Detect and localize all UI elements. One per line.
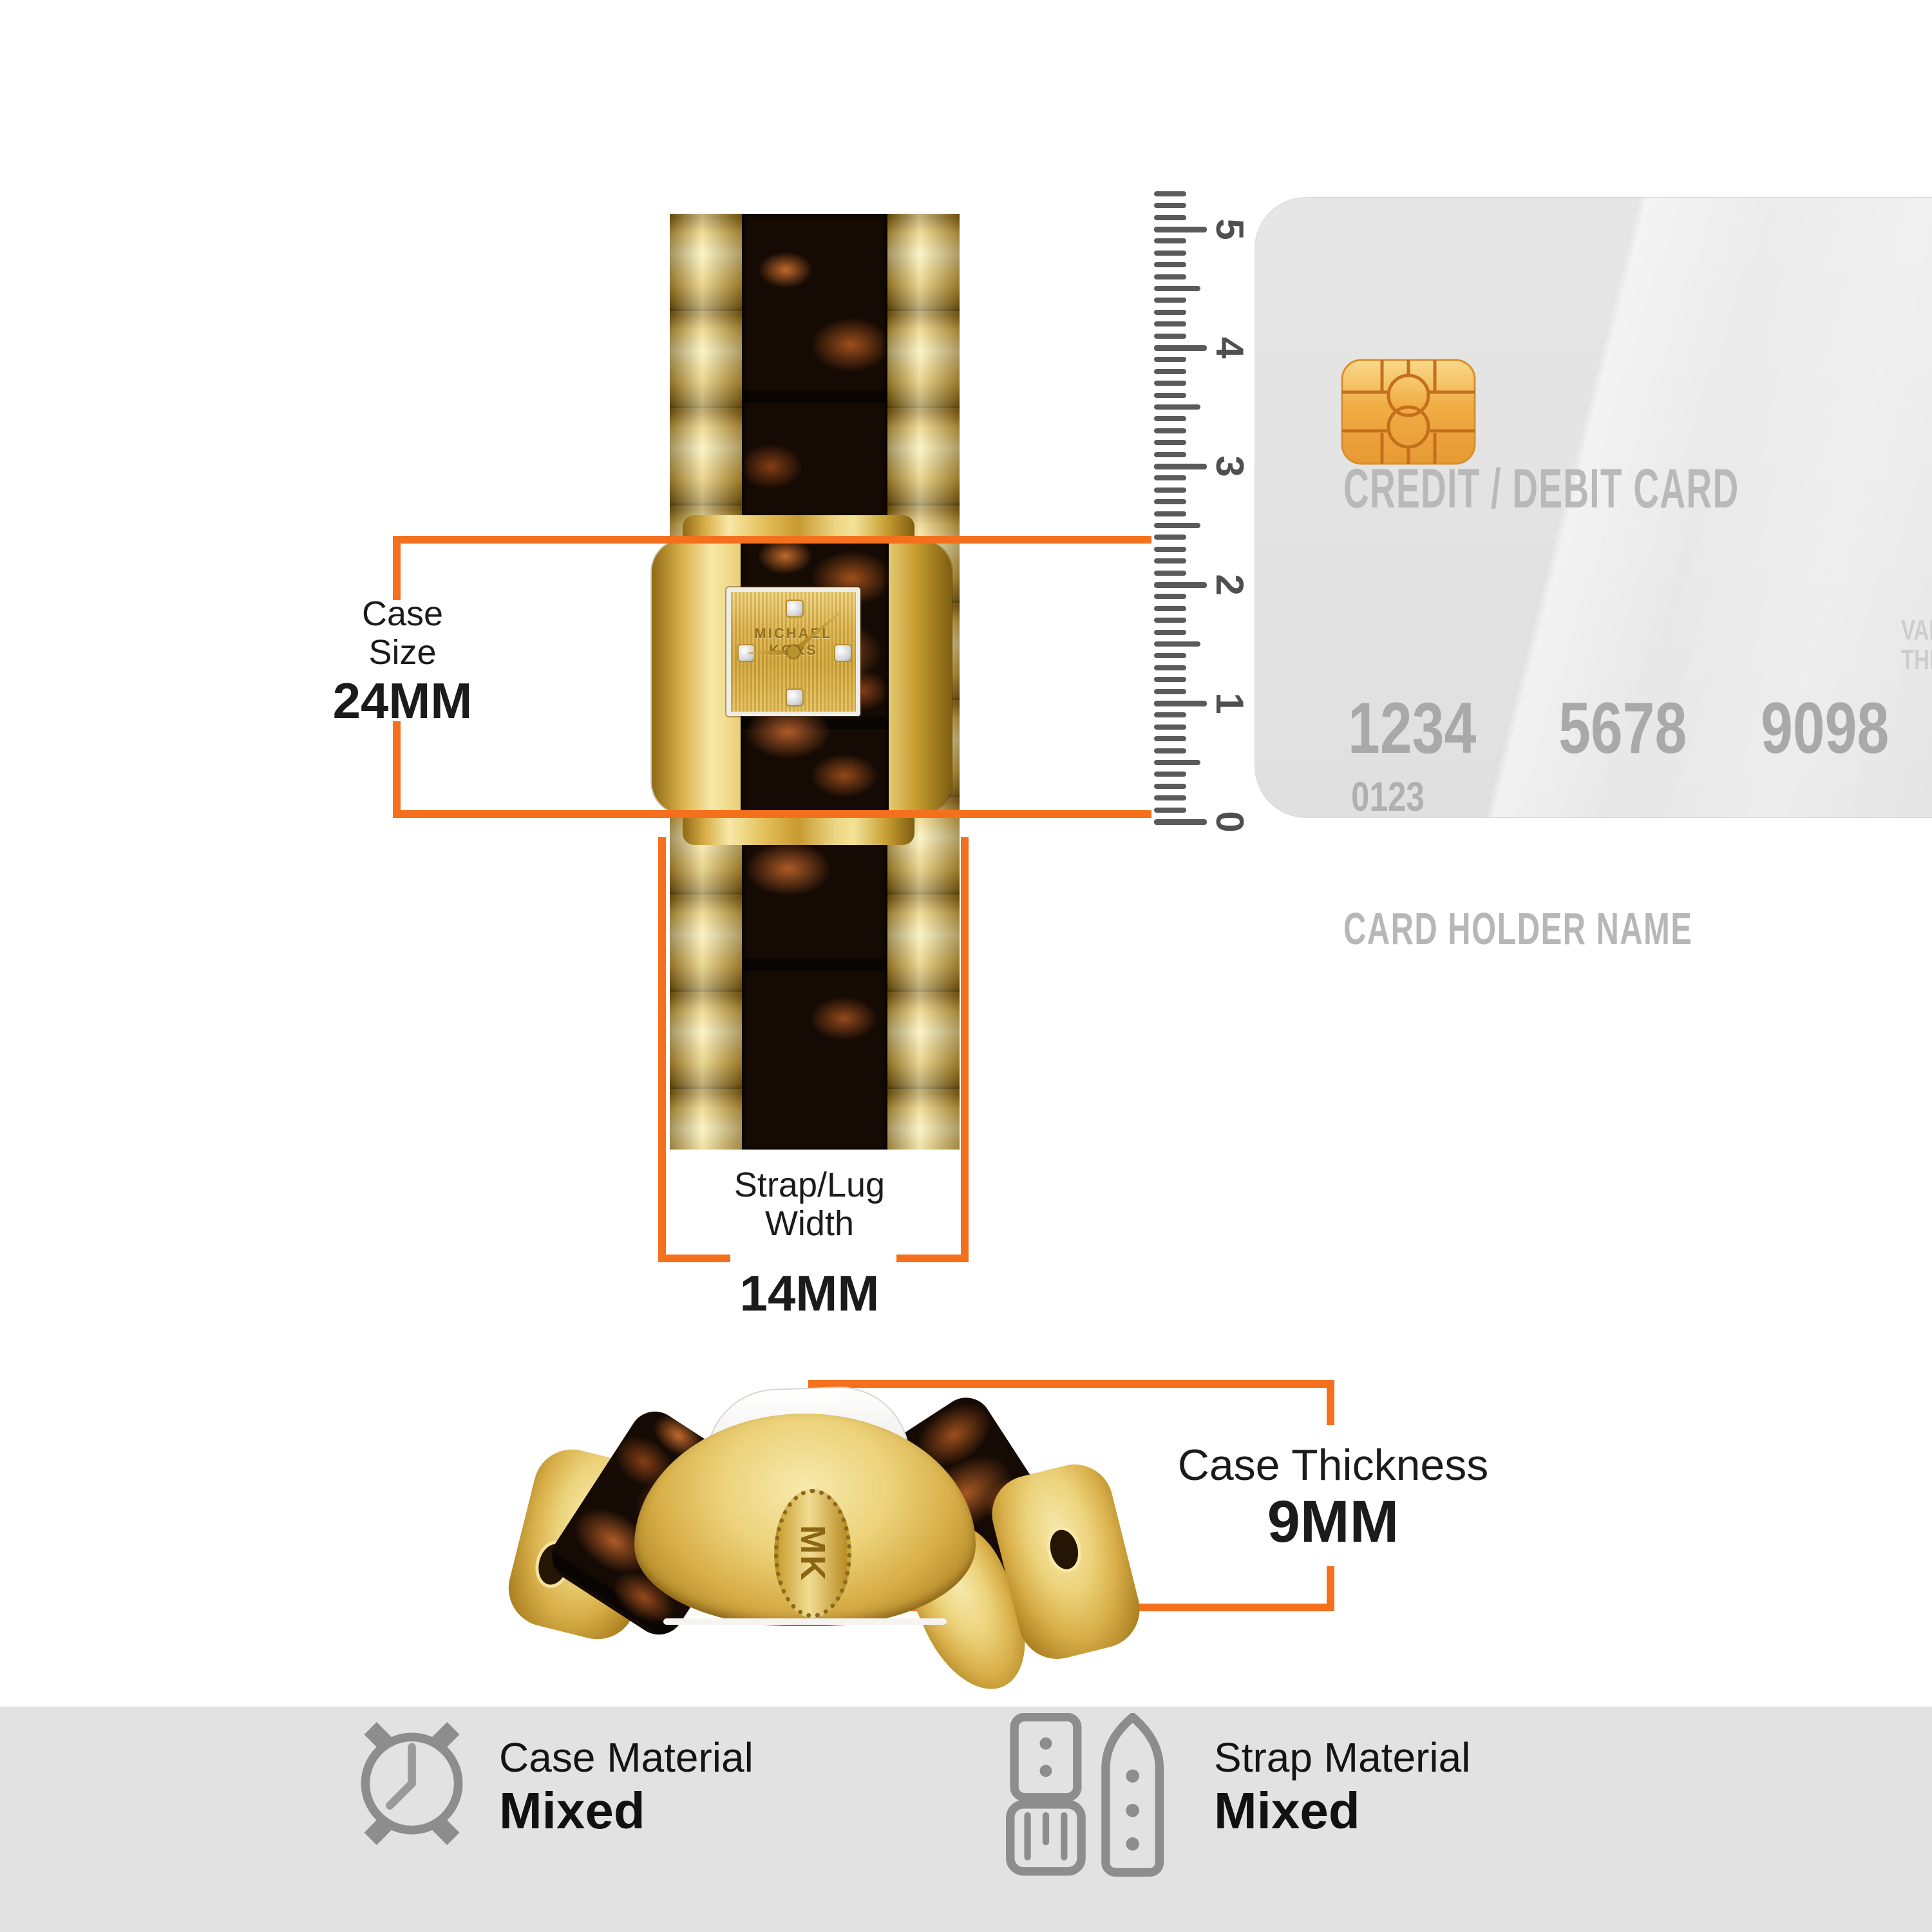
ruler-tick-mm xyxy=(1154,203,1186,208)
ruler-tick-cm xyxy=(1154,464,1207,469)
card-number-group2: 5678 xyxy=(1558,687,1687,770)
ruler-tick-mm xyxy=(1154,571,1186,576)
ruler-tick-mm xyxy=(1154,677,1186,682)
strap-width-line-right xyxy=(961,837,969,1262)
ruler-tick-mm xyxy=(1154,215,1186,220)
ruler-tick-mm xyxy=(1154,238,1186,243)
ruler-tick-mm xyxy=(1154,334,1186,339)
ruler-tick-mm xyxy=(1154,523,1200,528)
ruler-tick-mm xyxy=(1154,369,1186,374)
card-number-group1: 1234 xyxy=(1348,687,1476,770)
ruler-tick-mm xyxy=(1154,795,1186,800)
card-valid-text-line1: VAL xyxy=(1901,614,1932,647)
ruler-tick-cm xyxy=(1154,345,1207,351)
crown-logo-text: MK xyxy=(753,1519,873,1587)
watch-case: MICHAEL KORS xyxy=(652,540,952,814)
strap-width-line-left xyxy=(658,837,666,1262)
case-size-value: 24MM xyxy=(309,675,496,728)
ruler-tick-cm xyxy=(1154,227,1207,232)
ruler-tick-mm xyxy=(1154,488,1186,493)
card-holder-label: CARD HOLDER NAME xyxy=(1343,903,1692,954)
ruler-number-5: 5 xyxy=(1208,208,1251,251)
strap-material-label: Strap Material xyxy=(1214,1734,1470,1781)
ruler-tick-mm xyxy=(1154,594,1186,599)
strap-width-value: 14MM xyxy=(713,1267,906,1320)
case-material-value: Mixed xyxy=(499,1781,645,1841)
thickness-line-top xyxy=(808,1380,1334,1388)
ruler-tick-mm xyxy=(1154,381,1186,386)
strap-material-value: Mixed xyxy=(1214,1781,1360,1841)
ruler-tick-mm xyxy=(1154,511,1186,516)
ruler-number-1: 1 xyxy=(1208,682,1251,724)
ruler-tick-mm xyxy=(1154,440,1186,445)
side-crown: MK xyxy=(774,1489,851,1618)
thickness-label: Case Thickness xyxy=(1172,1443,1494,1488)
infographic-canvas: MICHAEL KORS Case Size 24MM Strap/Lug Wi… xyxy=(0,0,1932,1932)
ruler-number-4: 4 xyxy=(1208,327,1251,369)
ruler-tick-mm xyxy=(1154,274,1186,279)
watch-dial: MICHAEL KORS xyxy=(726,587,860,716)
ruler-tick-mm xyxy=(1154,618,1186,623)
ruler-tick-mm xyxy=(1154,475,1186,480)
watch-straps-icon xyxy=(1003,1713,1184,1880)
card-title: CREDIT / DEBIT CARD xyxy=(1343,457,1739,521)
ruler-tick-mm xyxy=(1154,404,1200,410)
ruler-tick-mm xyxy=(1154,665,1186,670)
ruler-number-3: 3 xyxy=(1208,445,1251,488)
strap-width-stub-left xyxy=(658,1255,730,1262)
ruler-tick-mm xyxy=(1154,393,1186,398)
materials-strip: Case Material Mixed Strap Material Mixed xyxy=(0,1707,1932,1932)
card-valid-text-line2: THR xyxy=(1901,644,1932,676)
ruler-tick-mm xyxy=(1154,428,1186,433)
strap-width-label-line1: Strap/Lug xyxy=(713,1167,906,1204)
ruler-tick-mm xyxy=(1154,298,1186,303)
dial-marker-3 xyxy=(834,644,852,662)
hands-hub xyxy=(788,646,799,658)
side-caseback-edge xyxy=(663,1618,947,1625)
ruler-tick-mm xyxy=(1154,286,1200,291)
ruler-tick-mm xyxy=(1154,499,1186,504)
ruler-tick-mm xyxy=(1154,808,1186,813)
ruler-tick-mm xyxy=(1154,416,1186,421)
credit-card: CREDIT / DEBIT CARD 1234 5678 9098 0123 … xyxy=(1255,197,1932,818)
thickness-stub-bottom xyxy=(1327,1566,1334,1611)
watch-case-icon xyxy=(349,1721,475,1846)
ruler-tick-mm xyxy=(1154,535,1186,540)
dial-marker-12 xyxy=(786,600,804,618)
ruler-tick-mm xyxy=(1154,547,1186,552)
ruler-tick-mm xyxy=(1154,357,1186,362)
ruler-tick-mm xyxy=(1154,262,1186,267)
ruler-tick-mm xyxy=(1154,724,1186,730)
ruler-tick-mm xyxy=(1154,736,1186,741)
ruler-tick-mm xyxy=(1154,712,1186,717)
card-issue-number: 0123 xyxy=(1351,773,1425,820)
ruler-tick-mm xyxy=(1154,452,1186,457)
case-size-bracket-upper xyxy=(393,536,401,600)
ruler-number-0: 0 xyxy=(1208,800,1251,843)
case-size-bracket-lower xyxy=(393,721,401,818)
ruler-tick-cm xyxy=(1154,701,1207,706)
ruler-tick-mm xyxy=(1154,689,1186,694)
card-number-group3: 9098 xyxy=(1761,687,1889,770)
case-size-label-line2: Size xyxy=(309,634,496,671)
ruler-tick-mm xyxy=(1154,772,1186,777)
strap-width-label-line2: Width xyxy=(713,1206,906,1242)
ruler-tick-mm xyxy=(1154,641,1200,647)
ruler-tick-mm xyxy=(1154,558,1186,563)
ruler-tick-cm xyxy=(1154,819,1207,825)
ruler-tick-mm xyxy=(1154,321,1186,327)
case-size-label-line1: Case xyxy=(309,596,496,632)
case-material-label: Case Material xyxy=(499,1734,753,1781)
watch-dial-face: MICHAEL KORS xyxy=(731,592,856,712)
ruler-tick-mm xyxy=(1154,251,1186,256)
ruler-tick-mm xyxy=(1154,191,1186,196)
side-link-right-hole xyxy=(1046,1527,1082,1572)
ruler-tick-mm xyxy=(1154,760,1200,765)
ruler-tick-mm xyxy=(1154,630,1186,635)
case-size-line-top xyxy=(393,536,1151,544)
dial-marker-6 xyxy=(786,688,804,706)
ruler-tick-mm xyxy=(1154,310,1186,315)
ruler-tick-mm xyxy=(1154,653,1186,658)
ruler-tick-mm xyxy=(1154,748,1186,753)
strap-width-stub-right xyxy=(896,1255,969,1262)
thickness-value: 9MM xyxy=(1172,1491,1494,1553)
card-chip-icon xyxy=(1341,359,1476,465)
case-size-line-bottom xyxy=(393,810,1151,818)
ruler-number-2: 2 xyxy=(1208,563,1251,606)
thickness-stub-top xyxy=(1327,1380,1334,1425)
ruler-tick-mm xyxy=(1154,784,1186,789)
ruler-tick-cm xyxy=(1154,582,1207,588)
ruler-tick-mm xyxy=(1154,606,1186,611)
